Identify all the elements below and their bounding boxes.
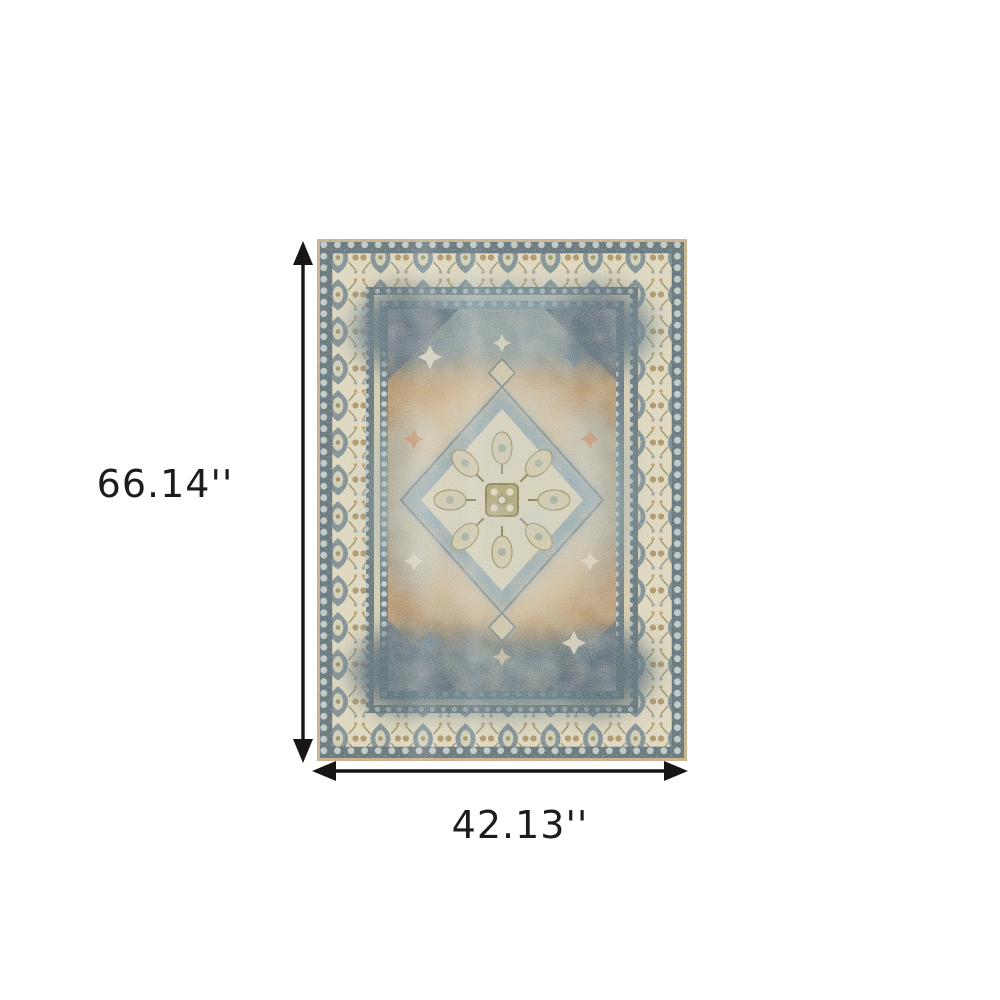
rug-illustration	[317, 239, 687, 761]
width-dimension-arrow	[311, 759, 689, 783]
dimension-diagram: 66.14'' 42.13''	[0, 0, 1000, 1000]
rug-product-image	[317, 239, 687, 761]
width-dimension-label: 42.13''	[430, 803, 610, 849]
height-dimension-arrow	[291, 240, 315, 764]
height-dimension-label: 66.14''	[75, 462, 255, 508]
